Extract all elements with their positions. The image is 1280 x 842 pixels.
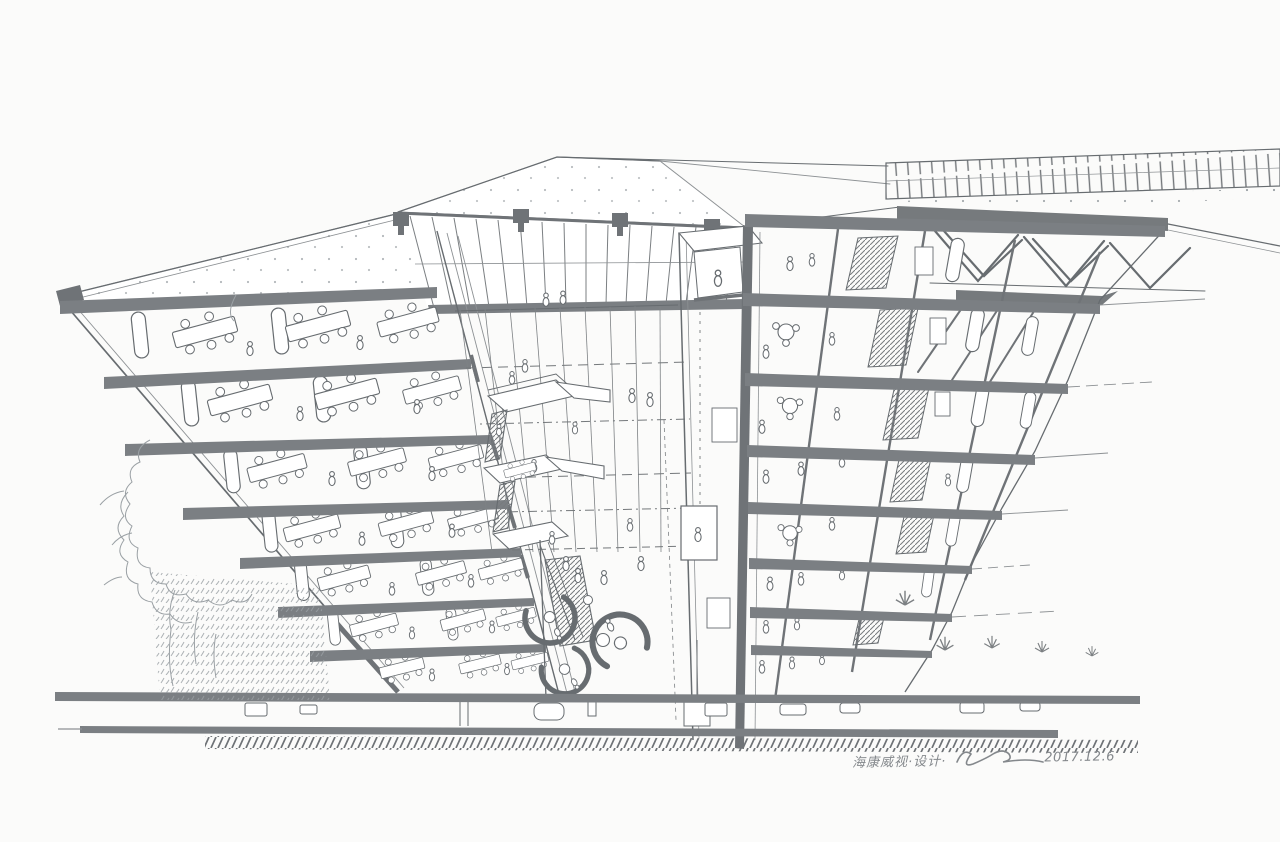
atrium-clerestory bbox=[393, 209, 745, 314]
inscription-date: 2017.12.6 bbox=[1044, 749, 1115, 765]
inscription-line: 海康威视·设计· 2017.12.6 bbox=[852, 738, 1183, 778]
building-section-drawing bbox=[0, 0, 1280, 842]
author-signature-space bbox=[952, 758, 1038, 760]
project-title-handwriting: 海康威视·设计· bbox=[852, 750, 947, 771]
sketch-page: 海康威视·设计· 2017.12.6 bbox=[0, 0, 1280, 842]
